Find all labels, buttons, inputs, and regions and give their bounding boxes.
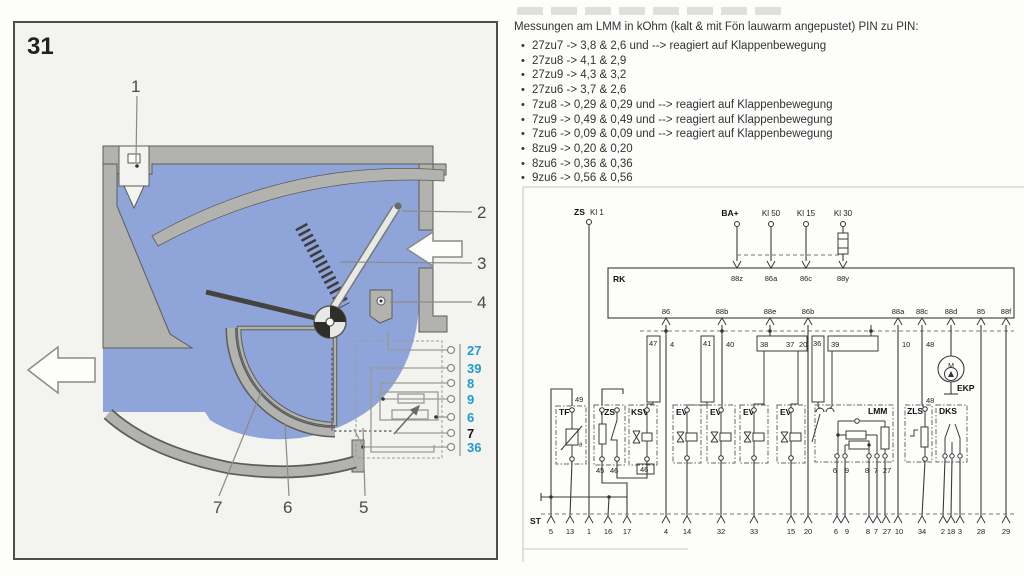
wire-label-10: 10	[902, 340, 910, 349]
connector-fork	[894, 318, 902, 325]
connector-fork	[977, 318, 985, 325]
pin-label-27: 27	[467, 343, 481, 358]
pin-label-36: 36	[467, 440, 481, 455]
tf-ground-wire	[551, 389, 572, 497]
measurement-item: 7zu8 -> 0,29 & 0,29 und --> reagiert auf…	[532, 98, 1019, 113]
tf-bottom-wire	[570, 461, 572, 516]
wire-label-47: 47	[649, 339, 657, 348]
rk-bottom-pin: 88b	[716, 307, 729, 316]
ekp-component: M EKP	[938, 325, 975, 394]
terminal-number: 27	[883, 527, 891, 536]
theta-symbol: ϑ	[579, 443, 583, 449]
connector-fork	[839, 261, 847, 268]
pin-label-6: 6	[467, 410, 474, 425]
connector-fork	[1002, 516, 1010, 523]
rk-box: RK 88z 86a 86c 88y 86 88b 88e 86b 88a 88…	[608, 268, 1014, 325]
lmm-resistor-1	[846, 431, 866, 439]
connector-fork	[566, 516, 574, 523]
zls-label: ZLS	[907, 406, 923, 416]
flap-pivot	[314, 306, 346, 338]
bracket-dot	[380, 300, 383, 303]
wire-label-36: 36	[813, 339, 821, 348]
connector-fork	[1002, 318, 1010, 325]
callout-4: 4	[477, 293, 486, 312]
rk-top-pin: 86c	[800, 274, 812, 283]
connector-fork	[956, 516, 964, 523]
pin-label-7: 7	[467, 426, 474, 441]
rk-top-pin: 86a	[765, 274, 778, 283]
temp-sensor	[128, 154, 140, 163]
terminal-number: 3	[958, 527, 962, 536]
terminal-number: 1	[587, 527, 591, 536]
st-label: ST	[530, 516, 542, 526]
page: Messungen am LMM in kOhm (kalt & mit Fön…	[0, 0, 1024, 576]
terminal-number: 14	[683, 527, 691, 536]
terminal-number: 15	[787, 527, 795, 536]
connector-fork	[804, 318, 812, 325]
connector-fork	[833, 516, 841, 523]
rk-top-pin: 88y	[837, 274, 849, 283]
connector-fork	[918, 318, 926, 325]
connector-fork	[585, 516, 593, 523]
dks-component: DKS	[936, 405, 967, 516]
pin-label-8: 8	[467, 376, 474, 391]
measurement-item: 27zu8 -> 4,1 & 2,9	[532, 54, 1019, 69]
lmm-pump-contact	[812, 414, 820, 442]
rod-anchor-pin	[395, 203, 402, 210]
connector-fork	[717, 516, 725, 523]
ev-components: EV EV EV EV	[673, 405, 805, 516]
lmm-resistor-2	[849, 441, 869, 449]
rk-bottom-pin: 88e	[764, 307, 777, 316]
rk-bottom-pin: 88d	[945, 307, 958, 316]
measurement-item: 8zu9 -> 0,20 & 0,20	[532, 142, 1019, 157]
terminal-number: 18	[947, 527, 955, 536]
connector-fork	[804, 516, 812, 523]
terminal-number: 2	[941, 527, 945, 536]
rk-bottom-pin: 86	[662, 307, 670, 316]
callout-7: 7	[213, 498, 222, 517]
connector-fork	[718, 318, 726, 325]
connector-fork	[623, 516, 631, 523]
kl30-label: Kl 30	[834, 209, 853, 218]
ekp-motor-m: M	[948, 363, 954, 370]
terminal-number: 33	[750, 527, 758, 536]
terminal-number: 13	[566, 527, 574, 536]
terminal-number: 7	[874, 527, 878, 536]
terminal-number: 28	[977, 527, 985, 536]
connector-fork	[662, 318, 670, 325]
tzs-component: TZS 45 46	[594, 389, 625, 475]
connector-fork	[947, 516, 955, 523]
measurements-title: Messungen am LMM in kOhm (kalt & mit Fön…	[514, 21, 1019, 33]
ekp-label: EKP	[957, 383, 975, 393]
connector-fork	[939, 516, 947, 523]
terminal-number: 5	[549, 527, 553, 536]
ba-plus-label: BA+	[721, 208, 738, 218]
wire-label-41: 41	[703, 339, 711, 348]
terminal-number: 17	[623, 527, 631, 536]
rk-bottom-pin: 85	[977, 307, 985, 316]
airflow-meter-figure: 31	[0, 0, 512, 576]
dks-label: DKS	[939, 406, 957, 416]
wire-label-38: 38	[760, 340, 768, 349]
kl50-label: Kl 50	[762, 209, 781, 218]
rk-label: RK	[613, 274, 626, 284]
terminal-number: 20	[804, 527, 812, 536]
terminal-number: 6	[834, 527, 838, 536]
lmm-label: LMM	[868, 406, 887, 416]
bracket-part4	[370, 290, 392, 323]
measurement-item: 7zu9 -> 0,49 & 0,49 und --> reagiert auf…	[532, 113, 1019, 128]
rk-bottom-pin: 88f	[1001, 307, 1012, 316]
callout1-dot	[135, 164, 139, 168]
terminal-number: 34	[918, 527, 926, 536]
terminal-number: 8	[866, 527, 870, 536]
zs-kl1-label: Kl 1	[590, 208, 604, 217]
connector-fork	[882, 516, 890, 523]
wire-label-37: 37	[786, 340, 794, 349]
pin-label-39: 39	[467, 361, 481, 376]
connector-fork	[547, 516, 555, 523]
terminal-number: 32	[717, 527, 725, 536]
ksv-component: KSV 46	[629, 405, 657, 474]
connector-fork	[683, 516, 691, 523]
terminal-number: 4	[664, 527, 668, 536]
measurement-notes: Messungen am LMM in kOhm (kalt & mit Fön…	[514, 21, 1019, 186]
bottom-terminal-strip: ST 5 13 1	[530, 514, 1014, 536]
rk-bottom-pin: 86b	[802, 307, 815, 316]
connector-fork	[604, 516, 612, 523]
fuse-symbol	[838, 233, 848, 254]
connector-fork	[662, 516, 670, 523]
wire-label-49: 49	[575, 395, 583, 404]
connector-fork	[802, 261, 810, 268]
connector-fork	[787, 516, 795, 523]
callout-3: 3	[477, 254, 486, 273]
lmm-component: LMM 6 9	[812, 405, 893, 516]
rk-bottom-pin: 88c	[916, 307, 928, 316]
connector-fork	[767, 261, 775, 268]
figure-number: 31	[27, 33, 54, 60]
faded-quote-text	[517, 7, 787, 15]
rk-top-pin: 88z	[731, 274, 743, 283]
callout-2: 2	[477, 203, 486, 222]
tzs-pin45: 45	[596, 466, 604, 475]
connector-fork	[750, 516, 758, 523]
kl15-label: Kl 15	[797, 209, 816, 218]
zs-terminal	[587, 220, 592, 225]
lmm-resistor-v	[881, 427, 889, 449]
ekp-triangle	[948, 371, 954, 377]
zs-label: ZS	[574, 207, 585, 217]
terminal-number: 10	[895, 527, 903, 536]
ground-loop	[541, 461, 647, 516]
zls-component: ZLS	[905, 405, 932, 516]
wire-label-39: 39	[831, 340, 839, 349]
wire-label-48b: 48	[926, 396, 934, 405]
tf-label: TF	[559, 407, 569, 417]
connector-fork	[918, 516, 926, 523]
connector-fork	[947, 318, 955, 325]
measurement-item: 7zu6 -> 0,09 & 0,09 und --> reagiert auf…	[532, 127, 1019, 142]
measurement-item: 27zu6 -> 3,7 & 2,6	[532, 83, 1019, 98]
lmm-pin27: 27	[883, 466, 891, 475]
rk-bottom-pin: 88a	[892, 307, 905, 316]
measurement-item: 27zu9 -> 4,3 & 3,2	[532, 68, 1019, 83]
wiring-schematic: ZS Kl 1 BA+ Kl 50 Kl 15 Kl 30	[512, 180, 1024, 576]
callout-1: 1	[131, 77, 140, 96]
pin-label-9: 9	[467, 392, 474, 407]
wire-label-48: 48	[926, 340, 934, 349]
wire-label-40: 40	[726, 340, 734, 349]
callout-5: 5	[359, 498, 368, 517]
connector-fork	[873, 516, 881, 523]
terminal-number: 9	[845, 527, 849, 536]
measurements-list: 27zu7 -> 3,8 & 2,6 und --> reagiert auf …	[514, 39, 1019, 186]
measurement-item: 27zu7 -> 3,8 & 2,6 und --> reagiert auf …	[532, 39, 1019, 54]
connector-fork	[766, 318, 774, 325]
terminal-number: 16	[604, 527, 612, 536]
sensor-pocket	[119, 146, 149, 186]
measurement-item: 8zu6 -> 0,36 & 0,36	[532, 157, 1019, 172]
terminal-number: 29	[1002, 527, 1010, 536]
wire-label-20: 20	[799, 340, 807, 349]
wire-label-4: 4	[670, 340, 674, 349]
connector-fork	[977, 516, 985, 523]
connector-fork	[733, 261, 741, 268]
connector-fork	[841, 516, 849, 523]
connector-fork	[894, 516, 902, 523]
callout-6: 6	[283, 498, 292, 517]
connector-fork	[865, 516, 873, 523]
